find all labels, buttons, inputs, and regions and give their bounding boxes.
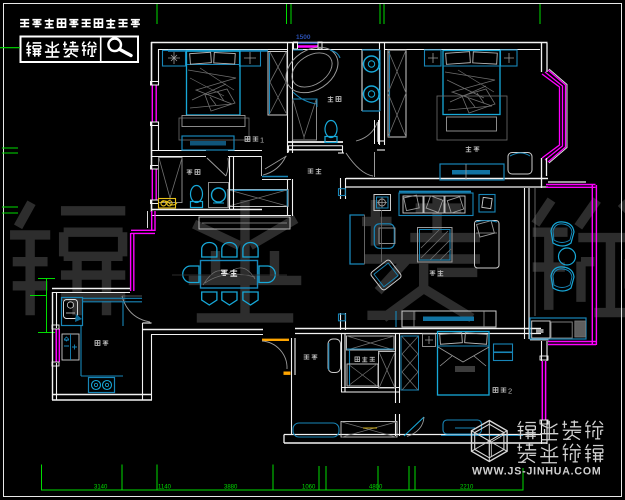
- svg-text:2: 2: [508, 387, 512, 396]
- svg-text:1140: 1140: [158, 485, 172, 491]
- svg-text:1500: 1500: [296, 34, 311, 41]
- svg-text:1060: 1060: [302, 485, 316, 491]
- svg-text:3140: 3140: [94, 485, 108, 491]
- svg-text:3880: 3880: [224, 485, 238, 491]
- svg-text:WWW.JS-JINHUA.COM: WWW.JS-JINHUA.COM: [472, 466, 602, 478]
- svg-text:2210: 2210: [460, 485, 474, 491]
- svg-text:1: 1: [260, 136, 264, 145]
- svg-text:4800: 4800: [369, 485, 383, 491]
